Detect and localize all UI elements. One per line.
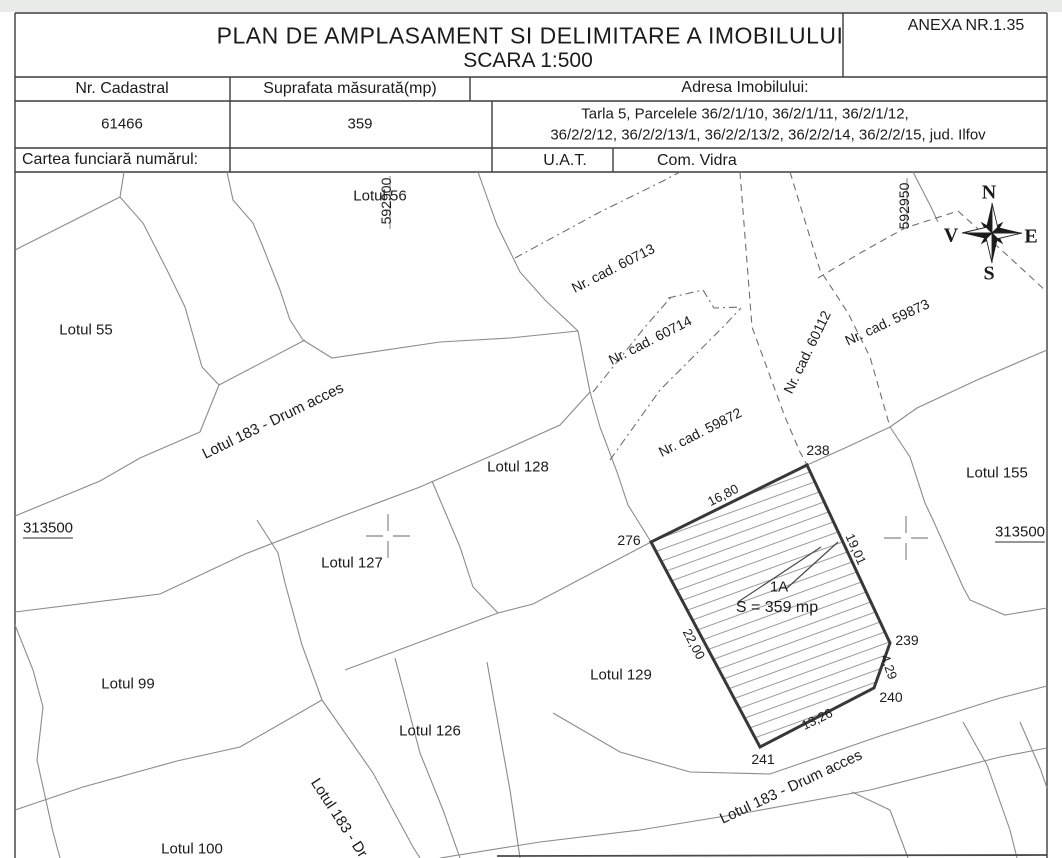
grid-y-label-313500-left: 313500 — [23, 520, 73, 539]
col-header-suprafata: Suprafata măsurată(mp) — [263, 80, 436, 98]
lot-label-127: Lotul 127 — [321, 555, 383, 572]
anexa-number: ANEXA NR.1.35 — [908, 17, 1025, 35]
lot-label-129: Lotul 129 — [590, 667, 652, 684]
compass-south-label: S — [983, 263, 994, 286]
uat-value: Com. Vidra — [657, 152, 737, 170]
col-header-nr-cadastral: Nr. Cadastral — [75, 80, 168, 98]
grid-y-label-313500-right: 313500 — [995, 524, 1045, 543]
point-label-239: 239 — [895, 632, 918, 648]
cartea-funciara-label: Cartea funciară numărul: — [22, 151, 198, 169]
parcel-1a-area: S = 359 mp — [736, 599, 818, 617]
compass-north-label: N — [982, 182, 996, 205]
lot-label-128: Lotul 128 — [487, 459, 549, 476]
page-scale: SCARA 1:500 — [463, 49, 593, 73]
point-label-238: 238 — [806, 442, 829, 458]
page-title: PLAN DE AMPLASAMENT SI DELIMITARE A IMOB… — [217, 23, 844, 50]
bottom-boundary-line — [497, 855, 1047, 856]
dashed-boundary-lines — [515, 172, 1047, 465]
point-label-240: 240 — [879, 689, 902, 705]
point-label-241: 241 — [751, 751, 774, 767]
grid-x-label-592950: 592950 — [896, 183, 912, 230]
point-label-276: 276 — [617, 532, 640, 548]
cadastral-plan-page: PLAN DE AMPLASAMENT SI DELIMITARE A IMOB… — [0, 0, 1062, 858]
lot-label-155: Lotul 155 — [966, 465, 1028, 482]
lot-label-99: Lotul 99 — [101, 676, 154, 693]
compass-west-label: V — [944, 225, 958, 248]
parcel-1a-name: 1A — [770, 579, 788, 596]
lot-label-100: Lotul 100 — [161, 841, 223, 858]
adresa-line2: 36/2/2/12, 36/2/2/13/1, 36/2/2/13/2, 36/… — [550, 127, 985, 144]
parcel-boundary-lines — [15, 172, 1047, 858]
col-header-adresa: Adresa Imobilului: — [681, 79, 808, 97]
adresa-line1: Tarla 5, Parcelele 36/2/1/10, 36/2/1/11,… — [581, 106, 908, 123]
compass-rose-icon — [962, 203, 1022, 263]
uat-label: U.A.T. — [543, 152, 587, 170]
compass-east-label: E — [1024, 226, 1037, 249]
suprafata-value: 359 — [347, 116, 372, 133]
lot-label-126: Lotul 126 — [399, 723, 461, 740]
lot-label-56: Lotul 56 — [353, 188, 406, 205]
nr-cadastral-value: 61466 — [101, 116, 143, 133]
lot-label-55: Lotul 55 — [59, 322, 112, 339]
